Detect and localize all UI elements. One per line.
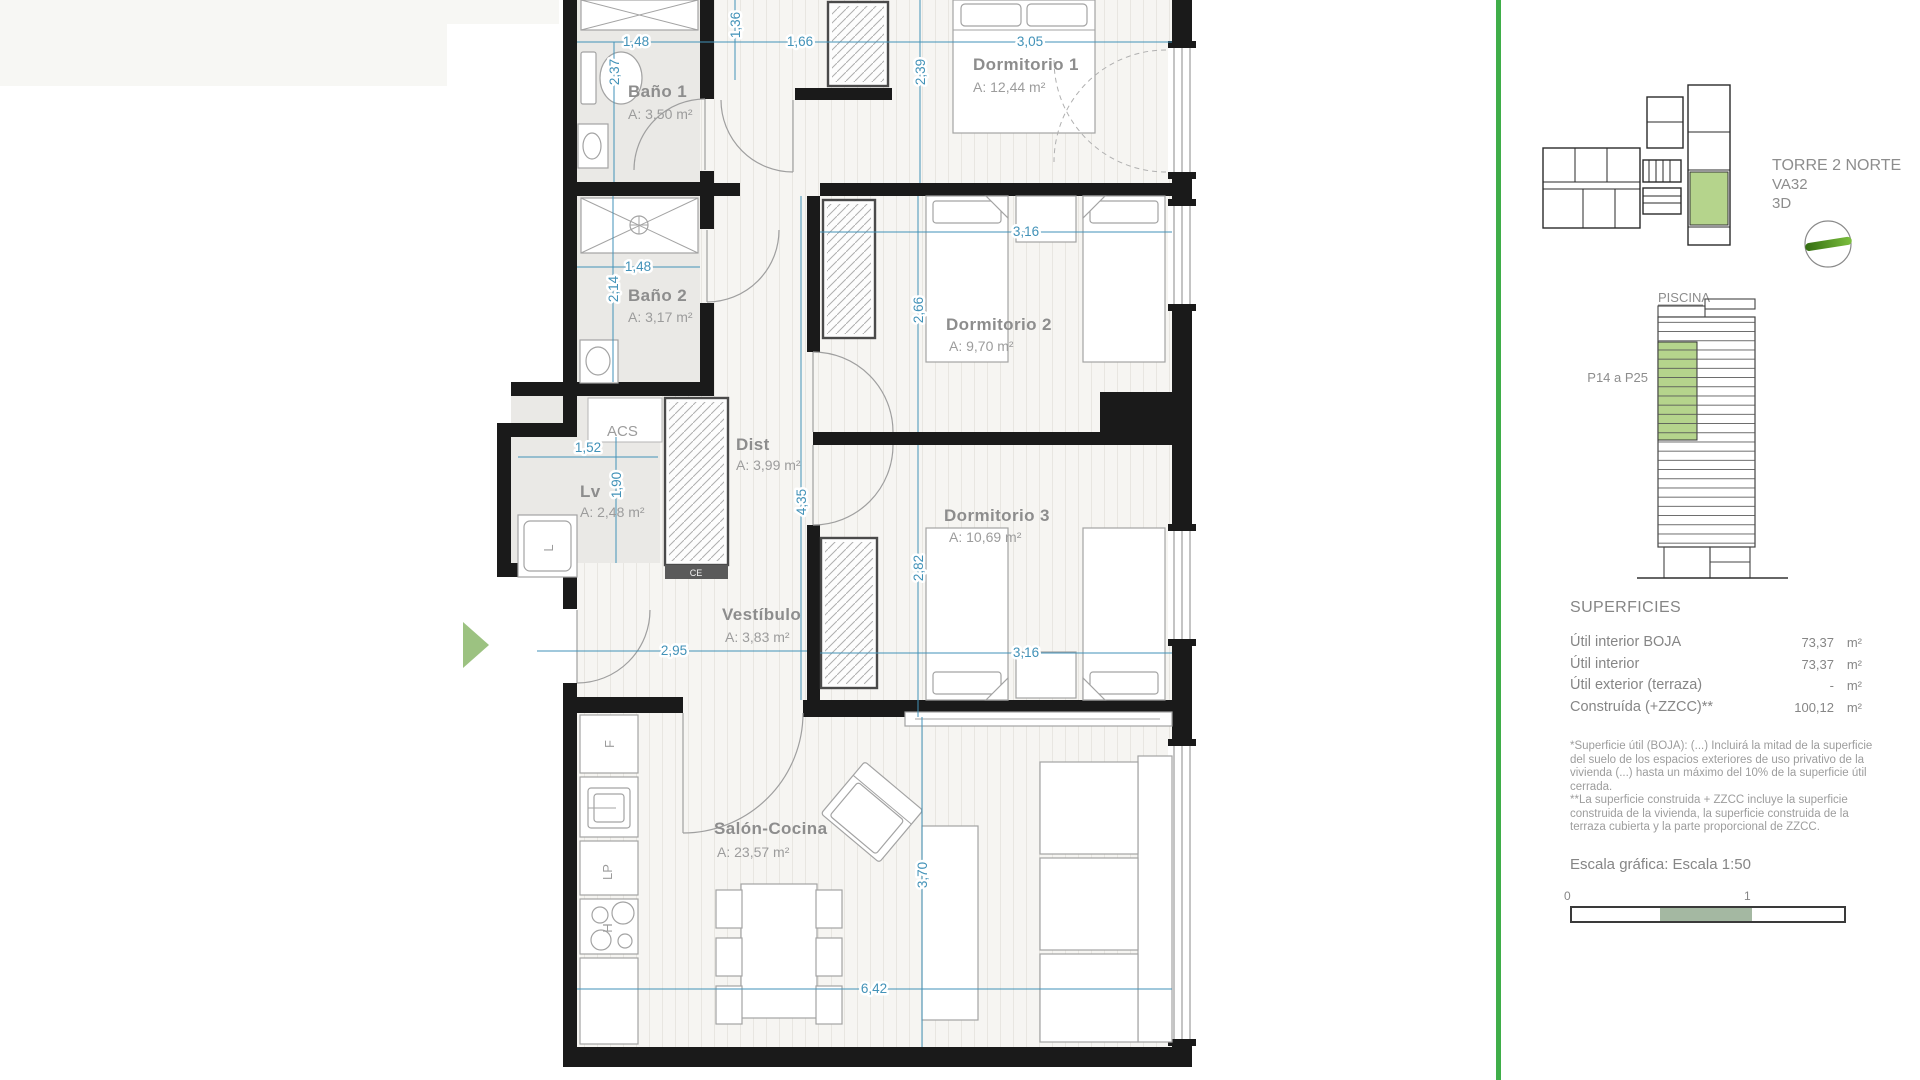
fridge-label: F	[602, 740, 617, 748]
room-area-salon: A: 23,57 m²	[717, 844, 790, 860]
table-row: Construída (+ZZCC)** 100,12 m²	[1570, 697, 1862, 719]
sofa	[1040, 756, 1172, 1042]
unit-code: VA32	[1772, 175, 1901, 194]
row-label: Útil exterior (terraza)	[1570, 675, 1780, 697]
dim-label: 2,82	[911, 555, 926, 581]
row-unit: m²	[1834, 697, 1862, 719]
room-name-bano2: Baño 2	[628, 286, 687, 305]
floor-plan-drawing: CE	[0, 0, 1500, 1080]
dim-label: 1,48	[625, 259, 651, 274]
room-name-dorm1: Dormitorio 1	[973, 55, 1079, 74]
washer-label: L	[541, 544, 556, 551]
room-area-dorm2: A: 9,70 m²	[949, 338, 1014, 354]
sink-bano2	[580, 340, 618, 383]
wardrobe-hall: CE	[665, 398, 728, 579]
window-dorm2	[1168, 199, 1196, 311]
dim-label: 3,70	[915, 862, 930, 888]
highlighted-unit	[1690, 172, 1728, 225]
footnote-zzcc: **La superficie construida + ZZCC incluy…	[1570, 794, 1874, 835]
superficies-table: SUPERFICIES Útil interior BOJA 73,37 m² …	[1570, 599, 1862, 718]
footnote-boja: *Superficie útil (BOJA): (...) Incluirá …	[1570, 740, 1874, 794]
row-value: 73,37	[1780, 654, 1834, 676]
coffee-table	[922, 826, 978, 1020]
closet-label: CE	[690, 568, 703, 578]
scale-segment	[1660, 908, 1752, 921]
room-name-dorm3: Dormitorio 3	[944, 506, 1050, 525]
entrance-arrow-icon	[463, 622, 489, 668]
row-unit: m²	[1834, 654, 1862, 676]
dim-label: 3,16	[1013, 645, 1039, 660]
room-name-salon: Salón-Cocina	[714, 819, 828, 838]
table-row: Útil interior BOJA 73,37 m²	[1570, 632, 1862, 654]
wardrobe-dorm2	[823, 200, 875, 338]
tv-console	[905, 712, 1172, 726]
bed-dorm2-right	[1083, 196, 1165, 362]
green-divider	[1496, 0, 1501, 1080]
row-unit: m²	[1834, 632, 1862, 654]
hob-label: H	[600, 923, 615, 932]
bed-dorm3-right	[1083, 528, 1165, 700]
dim-label: 1,52	[575, 440, 601, 455]
room-name-dorm2: Dormitorio 2	[946, 315, 1052, 334]
dim-label: 2,66	[911, 297, 926, 323]
room-area-bano1: A: 3,50 m²	[628, 106, 693, 122]
compass-icon	[1795, 212, 1871, 282]
dim-label: 2,14	[606, 275, 621, 302]
dim-label: 2,95	[661, 643, 687, 658]
lp-label: LP	[600, 864, 615, 880]
room-area-dorm3: A: 10,69 m²	[949, 529, 1022, 545]
room-area-vestibulo: A: 3,83 m²	[725, 629, 790, 645]
view-label: 3D	[1772, 194, 1901, 213]
room-name-bano1: Baño 1	[628, 82, 687, 101]
scale-bar: 0 1	[1570, 889, 1844, 923]
tower-elevation: PISCINA P14 a P25	[1580, 286, 1920, 596]
key-plan	[1535, 70, 1735, 250]
row-value: 73,37	[1780, 632, 1834, 654]
floors-range-label: P14 a P25	[1587, 370, 1648, 385]
dim-label: 3,05	[1017, 34, 1043, 49]
tower-title-block: TORRE 2 NORTE VA32 3D	[1772, 156, 1901, 213]
scale-start-label: 0	[1564, 889, 1571, 903]
dim-label: 4,35	[794, 489, 809, 515]
scale-title: Escala gráfica: Escala 1:50	[1570, 856, 1751, 873]
dim-label: 1,90	[609, 472, 624, 498]
room-area-bano2: A: 3,17 m²	[628, 309, 693, 325]
row-value: 100,12	[1780, 697, 1834, 719]
dim-label: 2,39	[913, 59, 928, 85]
scale-segment	[1752, 908, 1844, 921]
wardrobe-dorm1	[828, 2, 888, 86]
dim-label: 3,16	[1013, 224, 1039, 239]
table-row: Útil exterior (terraza) - m²	[1570, 675, 1862, 697]
footnotes: *Superficie útil (BOJA): (...) Incluirá …	[1570, 740, 1874, 835]
sink-bano1	[578, 124, 608, 168]
dim-label: 1,66	[787, 34, 813, 49]
room-area-dist: A: 3,99 m²	[736, 457, 801, 473]
row-value: -	[1780, 675, 1834, 697]
dim-label: 1,48	[623, 34, 649, 49]
room-name-dist: Dist	[736, 435, 770, 454]
wardrobe-dorm3	[821, 538, 877, 688]
room-area-lv: A: 2,48 m²	[580, 504, 645, 520]
table-row: Útil interior 73,37 m²	[1570, 654, 1862, 676]
dining-table	[716, 884, 842, 1024]
row-label: Útil interior BOJA	[1570, 632, 1780, 654]
bed-dorm3-left	[926, 528, 1008, 700]
row-label: Útil interior	[1570, 654, 1780, 676]
dim-label: 6,42	[861, 981, 887, 996]
acs-label: ACS	[607, 423, 638, 440]
shower-bano1	[581, 0, 698, 30]
shower-bano2	[581, 198, 698, 253]
window-dorm3	[1168, 524, 1196, 646]
scale-segment	[1572, 908, 1660, 921]
room-area-dorm1: A: 12,44 m²	[973, 79, 1046, 95]
dim-label: 1,36	[728, 12, 743, 38]
room-name-vestibulo: Vestíbulo	[722, 605, 801, 624]
superficies-title: SUPERFICIES	[1570, 599, 1862, 617]
scale-end-label: 1	[1744, 889, 1751, 903]
dim-label: 2,37	[607, 59, 622, 85]
row-label: Construída (+ZZCC)**	[1570, 697, 1780, 719]
room-name-lv: Lv	[580, 482, 601, 501]
scale-bar-segments	[1570, 906, 1846, 923]
floor-plan-page: CE	[0, 0, 1920, 1080]
row-unit: m²	[1834, 675, 1862, 697]
piscina-label: PISCINA	[1658, 290, 1710, 305]
window-dorm1	[1168, 41, 1196, 179]
tower-title: TORRE 2 NORTE	[1772, 156, 1901, 175]
